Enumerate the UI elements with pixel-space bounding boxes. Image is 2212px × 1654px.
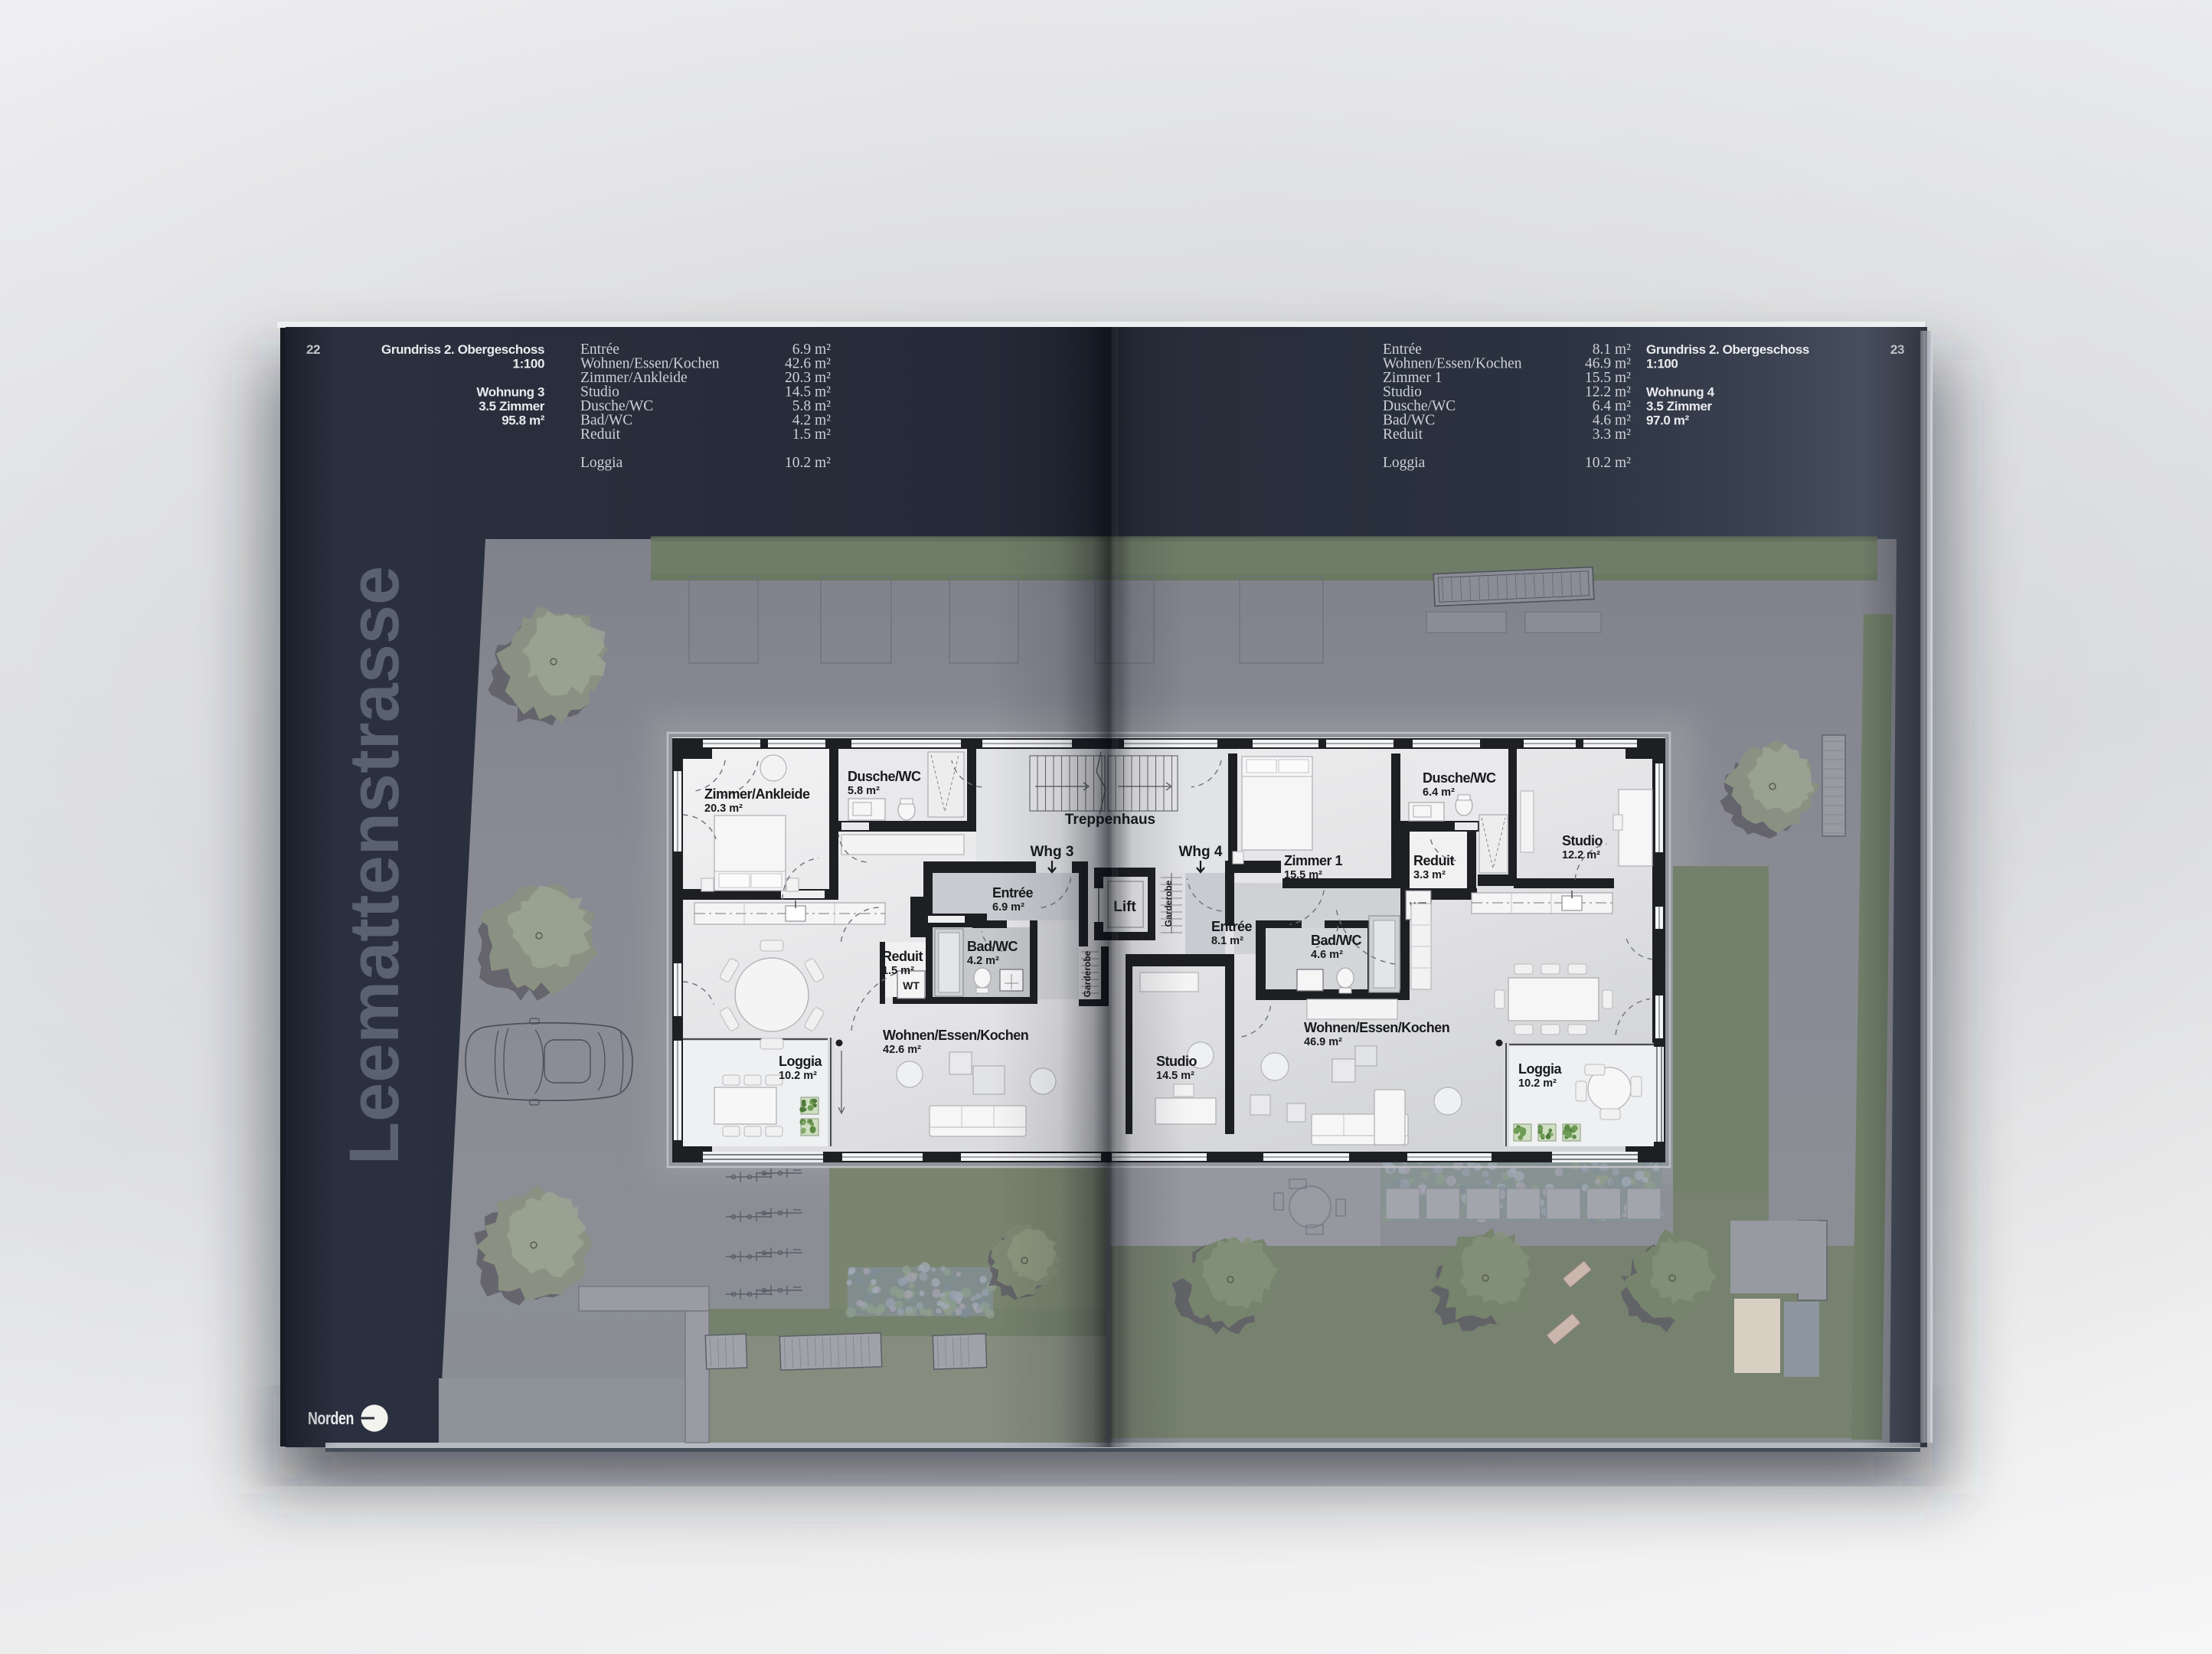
svg-text:46.9 m²: 46.9 m² — [1304, 1036, 1342, 1048]
svg-text:Wohnung 4: Wohnung 4 — [1646, 385, 1715, 400]
svg-text:Zimmer 1: Zimmer 1 — [1284, 853, 1343, 868]
svg-text:3.5 Zimmer: 3.5 Zimmer — [1646, 399, 1713, 413]
svg-text:Zimmer/Ankleide: Zimmer/Ankleide — [704, 786, 810, 802]
svg-text:1.5 m²: 1.5 m² — [792, 427, 831, 443]
svg-text:Reduit: Reduit — [882, 949, 923, 964]
svg-text:3.3 m²: 3.3 m² — [1413, 869, 1446, 881]
svg-text:20.3 m²: 20.3 m² — [704, 802, 743, 815]
svg-text:8.1 m²: 8.1 m² — [1211, 935, 1243, 947]
svg-text:15.5 m²: 15.5 m² — [1284, 869, 1322, 881]
svg-text:1:100: 1:100 — [513, 357, 544, 371]
svg-text:Dusche/WC: Dusche/WC — [848, 769, 921, 784]
svg-text:42.6 m²: 42.6 m² — [883, 1044, 921, 1056]
svg-text:Loggia: Loggia — [1383, 455, 1426, 471]
svg-text:Grundriss 2. Obergeschoss: Grundriss 2. Obergeschoss — [1646, 342, 1809, 357]
svg-text:95.8 m²: 95.8 m² — [502, 413, 545, 428]
svg-text:Loggia: Loggia — [580, 455, 623, 471]
svg-text:3.5 Zimmer: 3.5 Zimmer — [479, 399, 545, 413]
svg-text:3.3 m²: 3.3 m² — [1593, 427, 1631, 443]
svg-text:5.8 m²: 5.8 m² — [848, 785, 880, 797]
svg-text:10.2 m²: 10.2 m² — [779, 1070, 817, 1082]
svg-text:Reduit: Reduit — [580, 427, 621, 443]
svg-text:10.2 m²: 10.2 m² — [1518, 1077, 1557, 1090]
svg-text:Dusche/WC: Dusche/WC — [1423, 770, 1496, 786]
svg-text:10.2 m²: 10.2 m² — [785, 455, 831, 471]
svg-text:Wohnung 3: Wohnung 3 — [476, 385, 544, 400]
svg-text:Leemattenstrasse: Leemattenstrasse — [335, 566, 413, 1165]
svg-text:6.4 m²: 6.4 m² — [1423, 786, 1455, 799]
svg-text:Entrée: Entrée — [1211, 919, 1253, 934]
svg-text:10.2 m²: 10.2 m² — [1585, 455, 1631, 471]
svg-text:Wohnen/Essen/Kochen: Wohnen/Essen/Kochen — [1304, 1020, 1449, 1035]
svg-text:Reduit: Reduit — [1383, 427, 1423, 443]
svg-text:Bad/WC: Bad/WC — [1311, 933, 1361, 948]
svg-text:97.0 m²: 97.0 m² — [1646, 413, 1690, 428]
svg-text:Grundriss 2. Obergeschoss: Grundriss 2. Obergeschoss — [381, 342, 544, 357]
svg-text:1:100: 1:100 — [1646, 357, 1678, 371]
svg-text:12.2 m²: 12.2 m² — [1562, 849, 1600, 861]
svg-text:Reduit: Reduit — [1413, 853, 1455, 868]
svg-text:4.6 m²: 4.6 m² — [1311, 949, 1343, 961]
svg-text:Studio: Studio — [1562, 833, 1603, 848]
svg-text:1.5 m²: 1.5 m² — [882, 965, 914, 977]
svg-text:WT: WT — [903, 979, 920, 992]
svg-text:Loggia: Loggia — [1518, 1061, 1562, 1077]
svg-text:Loggia: Loggia — [779, 1054, 822, 1069]
